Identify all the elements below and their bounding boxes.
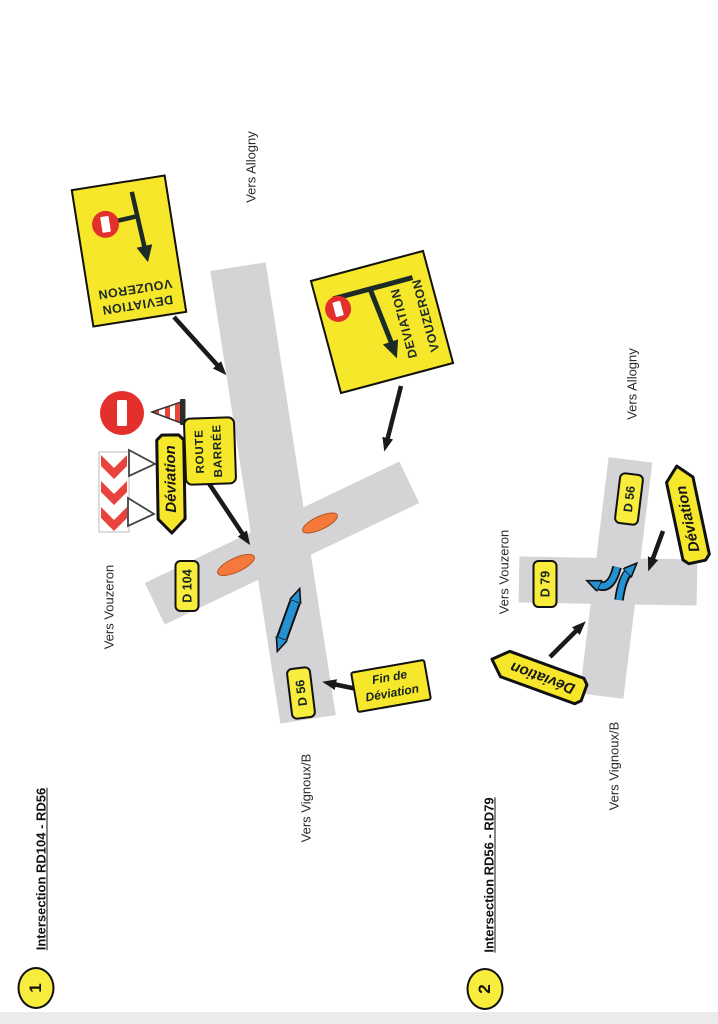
route-barree-line: BARRÉE — [209, 424, 229, 478]
route-plate-d79: D 79 — [533, 560, 558, 608]
deviation-panel-top: DEVIATION VOUZERON — [71, 174, 188, 327]
connector-arrow-panel-right — [387, 386, 401, 441]
deviation-arrow-sign: Déviation — [660, 460, 714, 569]
flag-marker-icon — [129, 450, 155, 476]
label-vers-vignoux: Vers Vignoux/B — [607, 722, 622, 811]
label-vers-vouzeron: Vers Vouzeron — [102, 565, 117, 650]
deviation-arrow-label: Déviation — [483, 643, 592, 710]
flag-marker-icon — [128, 498, 154, 526]
label-vers-vignoux: Vers Vignoux/B — [299, 754, 314, 843]
label-vers-vouzeron: Vers Vouzeron — [497, 530, 512, 615]
deviation-arrow-label: Déviation — [660, 460, 714, 569]
label-vers-allogny: Vers Allogny — [244, 131, 259, 203]
connector-arrow-deviation-left — [550, 629, 578, 657]
scan-edge-band — [0, 1012, 718, 1024]
road-rd56-allogny-vignoux — [210, 262, 335, 723]
diagram2-number: 2 — [475, 984, 495, 993]
diagram2-number-badge: 2 — [467, 968, 504, 1010]
connector-arrow-deviation-right — [652, 531, 663, 561]
route-barree-sign: ROUTE BARRÉE — [183, 416, 237, 486]
scanned-deviation-plan-page: DEVIATION VOUZERON DEVIATION VOUZERON Dé… — [0, 0, 718, 1024]
deviation-arrow-sign: Déviation — [483, 643, 592, 710]
diagram1-number: 1 — [26, 983, 46, 992]
no-entry-icon — [100, 391, 144, 435]
diagram1-number-badge: 1 — [18, 967, 55, 1009]
traffic-cone-icon — [150, 398, 186, 426]
diagram2-title: Intersection RD56 - RD79 — [482, 797, 497, 952]
connector-arrow-panel-top — [174, 317, 219, 367]
route-barree-text: ROUTE BARRÉE — [191, 424, 228, 479]
route-barree-line: ROUTE — [191, 424, 211, 478]
connector-arrow-route-barree — [208, 482, 244, 536]
fin-de-deviation-sign: Fin de Déviation — [350, 659, 432, 714]
chevron-beacon-icon — [99, 452, 129, 532]
label-vers-allogny: Vers Allogny — [625, 348, 640, 420]
deviation-panel-right: DEVIATION VOUZERON — [310, 250, 455, 395]
route-plate-d104: D 104 — [175, 560, 200, 612]
diagram1-title: Intersection RD104 - RD56 — [34, 788, 49, 951]
